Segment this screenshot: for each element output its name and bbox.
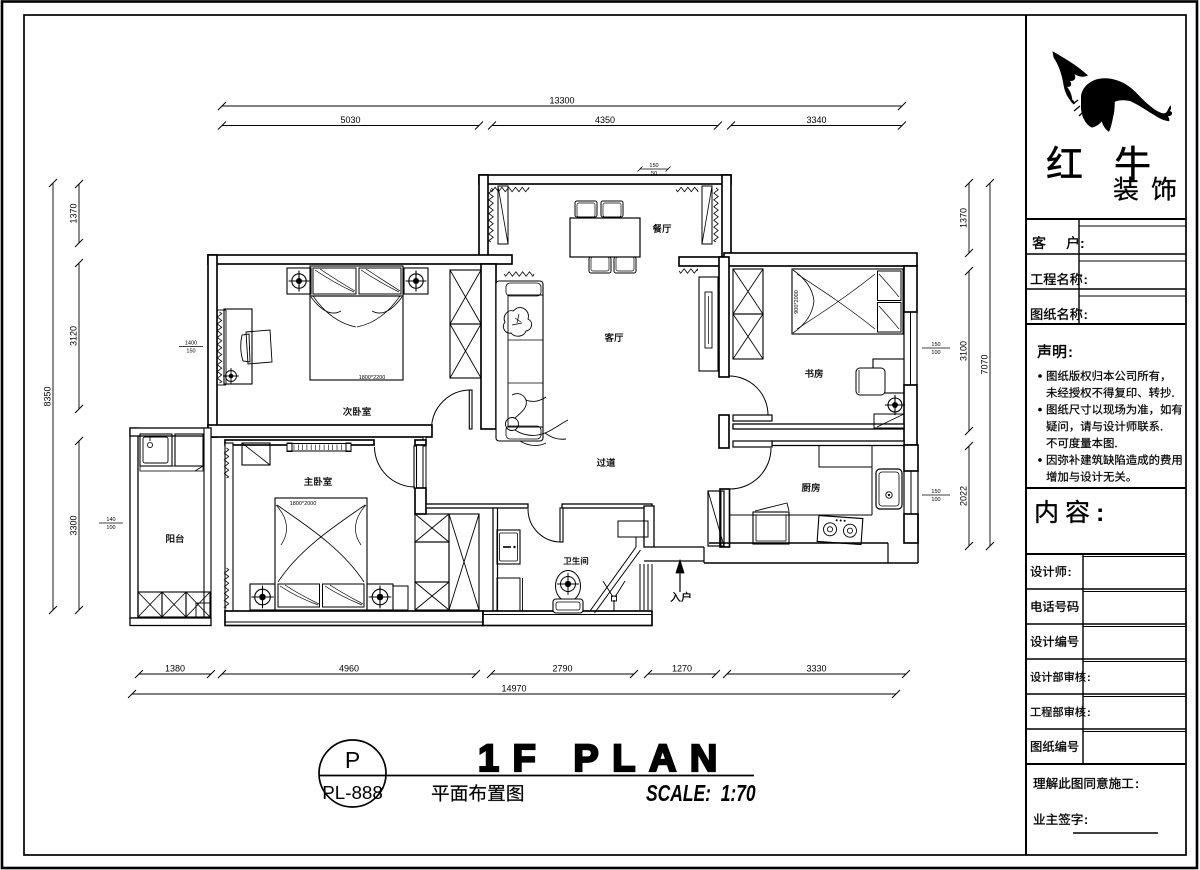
svg-text:2022: 2022: [959, 486, 969, 506]
svg-text:900*2000: 900*2000: [794, 290, 800, 314]
svg-text::: :: [1084, 813, 1088, 827]
svg-text::: :: [1135, 777, 1139, 791]
svg-text:3120: 3120: [69, 326, 79, 346]
svg-text:14970: 14970: [501, 684, 526, 694]
svg-text:P: P: [345, 747, 360, 773]
svg-text::: :: [1080, 235, 1085, 251]
svg-text:100: 100: [931, 497, 940, 503]
svg-text:100: 100: [106, 525, 115, 531]
svg-text:5030: 5030: [340, 115, 360, 125]
svg-text::: :: [1087, 707, 1091, 719]
svg-text:1400: 1400: [185, 341, 197, 347]
svg-text::: :: [1087, 672, 1091, 684]
svg-text::: :: [1068, 344, 1073, 361]
svg-text:150: 150: [186, 349, 195, 355]
svg-text:1380: 1380: [165, 664, 185, 674]
svg-text:8350: 8350: [43, 386, 53, 406]
svg-text:150: 150: [649, 163, 658, 169]
svg-text:1270: 1270: [672, 664, 692, 674]
svg-text::: :: [1096, 499, 1104, 527]
svg-text:13300: 13300: [549, 96, 574, 106]
svg-text:1370: 1370: [69, 203, 79, 223]
svg-text:3330: 3330: [806, 664, 826, 674]
svg-text:150: 150: [931, 489, 940, 495]
svg-text:PL-888: PL-888: [322, 782, 383, 803]
svg-text:3300: 3300: [69, 515, 79, 535]
svg-text:SCALE: 1:70: SCALE: 1:70: [646, 782, 756, 807]
svg-text::: :: [1084, 272, 1088, 287]
svg-text::: :: [1068, 565, 1072, 579]
svg-text:1800*2000: 1800*2000: [290, 501, 317, 507]
svg-text:3340: 3340: [806, 115, 826, 125]
svg-text:1800*2200: 1800*2200: [359, 375, 386, 381]
svg-text:4960: 4960: [339, 664, 359, 674]
svg-text:1370: 1370: [959, 208, 969, 228]
svg-text:100: 100: [931, 350, 940, 356]
svg-text:150: 150: [931, 342, 940, 348]
svg-text:2790: 2790: [552, 664, 572, 674]
svg-text::: :: [1084, 307, 1088, 322]
svg-text:140: 140: [106, 517, 115, 523]
svg-text:7070: 7070: [980, 354, 990, 374]
svg-text:3100: 3100: [959, 341, 969, 361]
svg-text:1F PLAN: 1F PLAN: [478, 738, 731, 780]
svg-text:4350: 4350: [595, 115, 615, 125]
